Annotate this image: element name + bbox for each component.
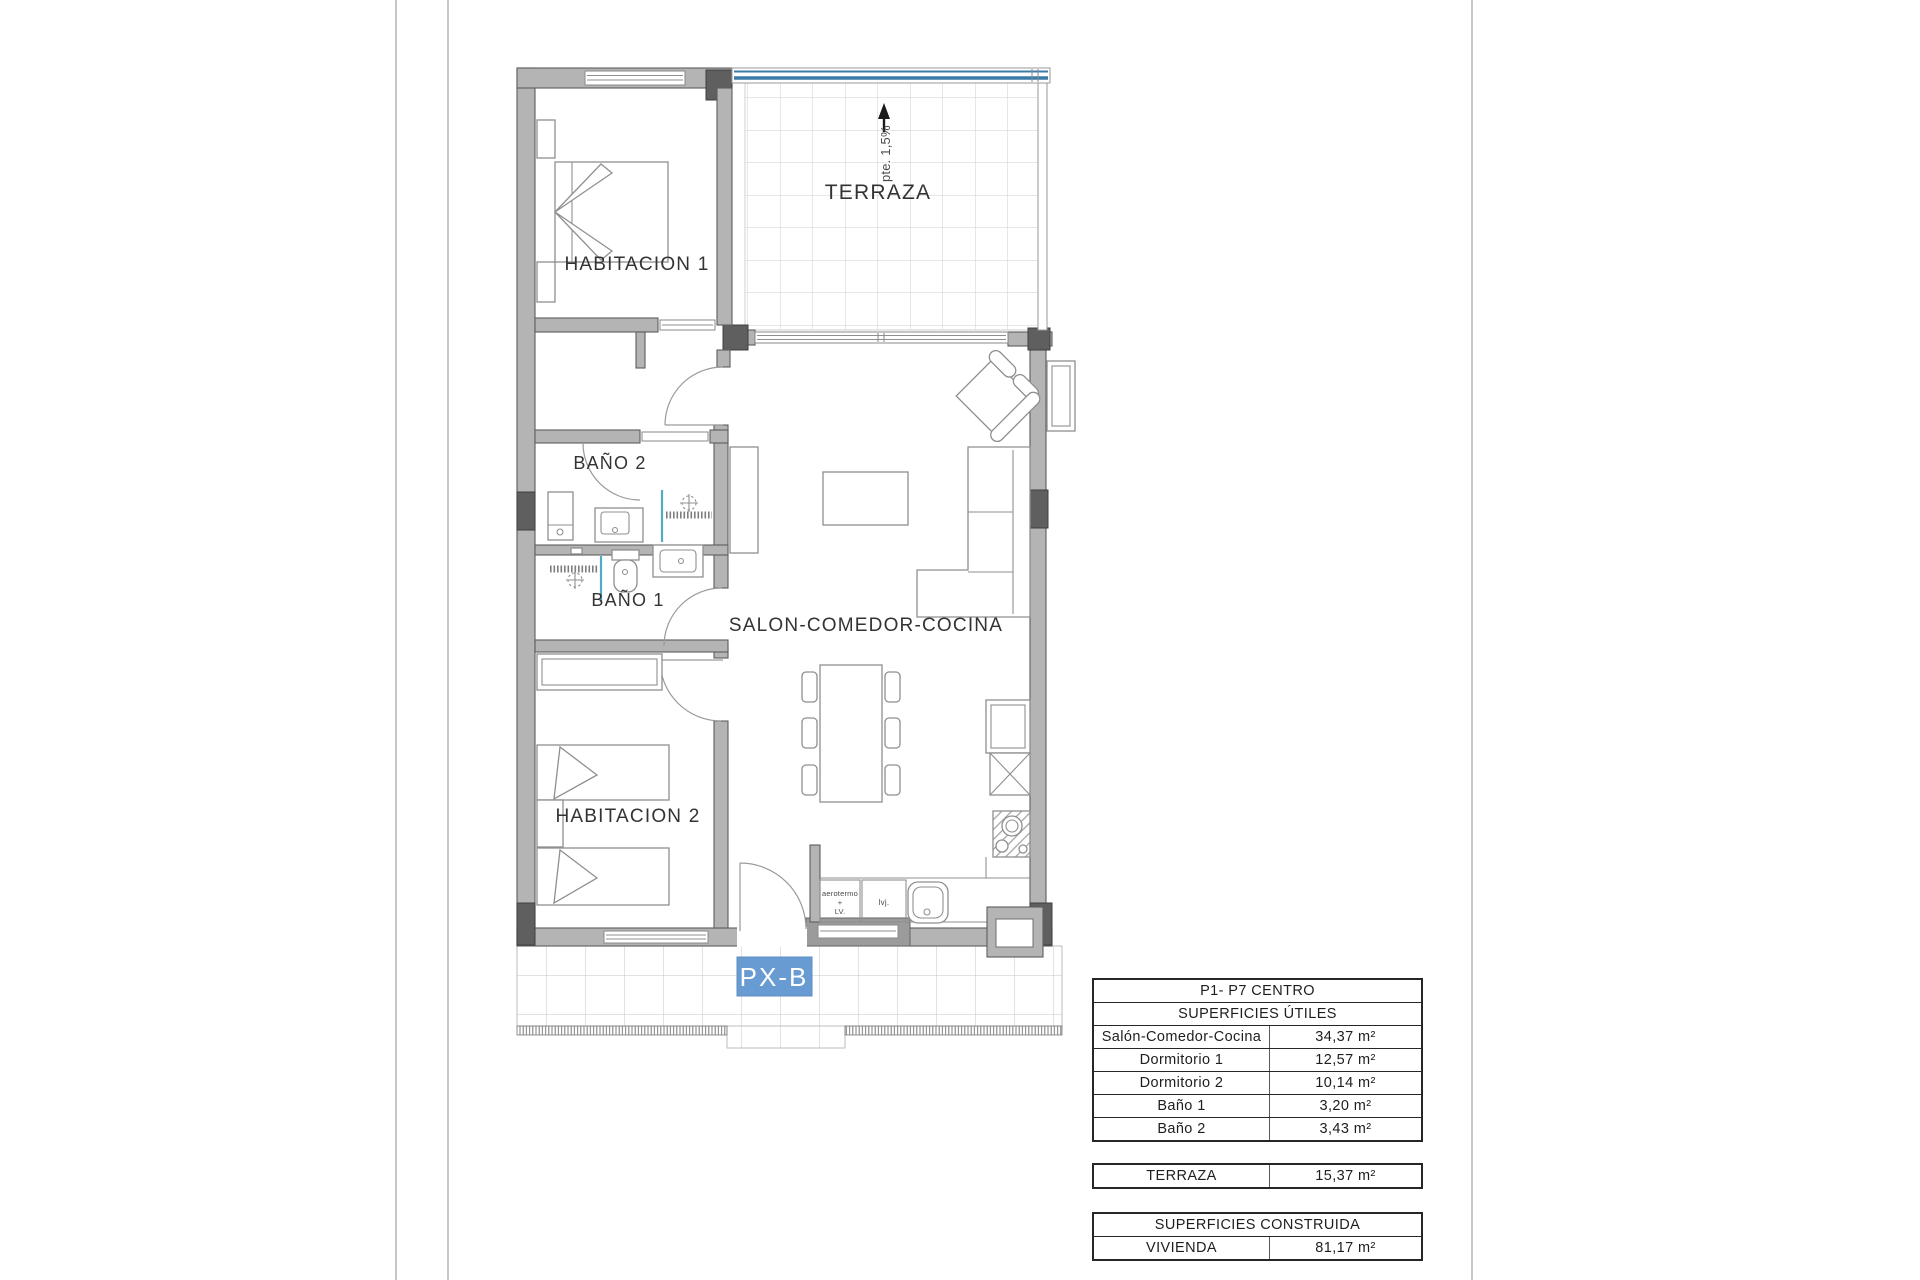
unit-badge-label: PX-B — [740, 962, 809, 992]
pillar — [723, 325, 748, 350]
unit-badge: PX-B — [737, 957, 812, 996]
row-value: 10,14 m² — [1270, 1072, 1421, 1094]
row-value: 3,20 m² — [1270, 1095, 1421, 1117]
table-terraza: TERRAZA 15,37 m² — [1092, 1163, 1423, 1189]
table-row: VIVIENDA 81,17 m² — [1094, 1236, 1421, 1259]
row-label: Baño 2 — [1094, 1118, 1270, 1140]
slope-label: pte. 1,5% — [878, 125, 893, 182]
chair-icon — [885, 718, 900, 748]
walkway-edge-hatch-left — [517, 1026, 727, 1035]
kitchen-peninsula-wall — [810, 845, 820, 922]
ac-unit-icon — [1047, 361, 1075, 431]
room-label-bano1: BAÑO 1 — [591, 589, 664, 610]
salon-furniture — [730, 348, 1045, 617]
pillar — [1028, 328, 1050, 350]
table-row: Baño 1 3,20 m² — [1094, 1094, 1421, 1117]
row-value: 34,37 m² — [1270, 1026, 1421, 1048]
aerotermo-label: LV. — [835, 907, 846, 916]
table-title: P1- P7 CENTRO — [1094, 980, 1421, 1002]
pillar — [517, 903, 535, 945]
door-bano1 — [664, 588, 722, 646]
oven-column-icon — [990, 753, 1030, 795]
hob-icon — [993, 811, 1030, 857]
table-row: Dormitorio 1 12,57 m² — [1094, 1048, 1421, 1071]
table-row: Dormitorio 2 10,14 m² — [1094, 1071, 1421, 1094]
toilet-icon — [612, 550, 639, 560]
bano2-fixtures — [548, 490, 712, 542]
floorplan-sheet: HABITACION 1 TERRAZA pte. 1,5% BAÑO 2 BA… — [0, 0, 1920, 1280]
dishwasher-label: lvj. — [879, 898, 890, 907]
coffee-table-icon — [823, 472, 908, 525]
window-habitacion1 — [585, 71, 685, 85]
table-subtitle: SUPERFICIES ÚTILES — [1094, 1003, 1421, 1025]
row-label: VIVIENDA — [1094, 1237, 1270, 1259]
row-value: 12,57 m² — [1270, 1049, 1421, 1071]
dining-set-icon — [802, 665, 900, 802]
chair-icon — [802, 672, 817, 702]
dining-table-icon — [820, 665, 882, 802]
room-label-bano2: BAÑO 2 — [573, 452, 646, 473]
kitchen-sink-icon — [908, 882, 948, 923]
row-label: Baño 1 — [1094, 1095, 1270, 1117]
door-hall-salon — [665, 367, 723, 425]
table-row: Baño 2 3,43 m² — [1094, 1117, 1421, 1140]
room-label-terraza: TERRAZA — [825, 181, 931, 204]
sliding-door-bano2 — [642, 432, 708, 441]
chair-icon — [885, 672, 900, 702]
row-value: 3,43 m² — [1270, 1118, 1421, 1140]
pillar — [517, 492, 535, 530]
row-label: Salón-Comedor-Cocina — [1094, 1026, 1270, 1048]
table-superficies-construida: SUPERFICIES CONSTRUIDA VIVIENDA 81,17 m² — [1092, 1212, 1423, 1261]
terraza-railing — [1038, 83, 1047, 330]
room-label-habitacion1: HABITACION 1 — [565, 254, 710, 275]
window-habitacion2 — [604, 931, 708, 943]
nightstand-icon — [537, 262, 555, 302]
table-superficies-utiles: P1- P7 CENTRO SUPERFICIES ÚTILES Salón-C… — [1092, 978, 1423, 1142]
table-row: Salón-Comedor-Cocina 34,37 m² — [1094, 1025, 1421, 1048]
door-entrance — [737, 863, 807, 947]
beds-single-icon — [537, 654, 669, 905]
room-label-habitacion2: HABITACION 2 — [556, 806, 701, 827]
table-row: TERRAZA 15,37 m² — [1094, 1165, 1421, 1187]
door-habitacion2 — [660, 660, 723, 721]
row-label: TERRAZA — [1094, 1165, 1270, 1187]
room-label-salon: SALON-COMEDOR-COCINA — [729, 615, 1003, 636]
terraza-floor — [745, 83, 1038, 330]
chair-icon — [885, 765, 900, 795]
aerotermo-label: + — [838, 898, 843, 907]
row-value: 15,37 m² — [1270, 1165, 1421, 1187]
entrance-porch — [987, 907, 1043, 957]
table-title: SUPERFICIES CONSTRUIDA — [1094, 1214, 1421, 1236]
aerotermo-label: aerotermo — [822, 889, 858, 898]
walkway-edge-hatch-right — [845, 1026, 1062, 1035]
pillar — [1028, 490, 1048, 528]
row-label: Dormitorio 2 — [1094, 1072, 1270, 1094]
floorplan-drawing: HABITACION 1 TERRAZA pte. 1,5% BAÑO 2 BA… — [0, 0, 1920, 1280]
tv-unit-icon — [730, 447, 758, 553]
row-label: Dormitorio 1 — [1094, 1049, 1270, 1071]
chair-icon — [802, 718, 817, 748]
nightstand-icon — [537, 120, 555, 158]
fridge-icon — [986, 700, 1030, 753]
row-value: 81,17 m² — [1270, 1237, 1421, 1259]
toilet-icon — [548, 492, 573, 540]
sliding-door-terraza — [755, 332, 1008, 343]
chair-icon — [802, 765, 817, 795]
